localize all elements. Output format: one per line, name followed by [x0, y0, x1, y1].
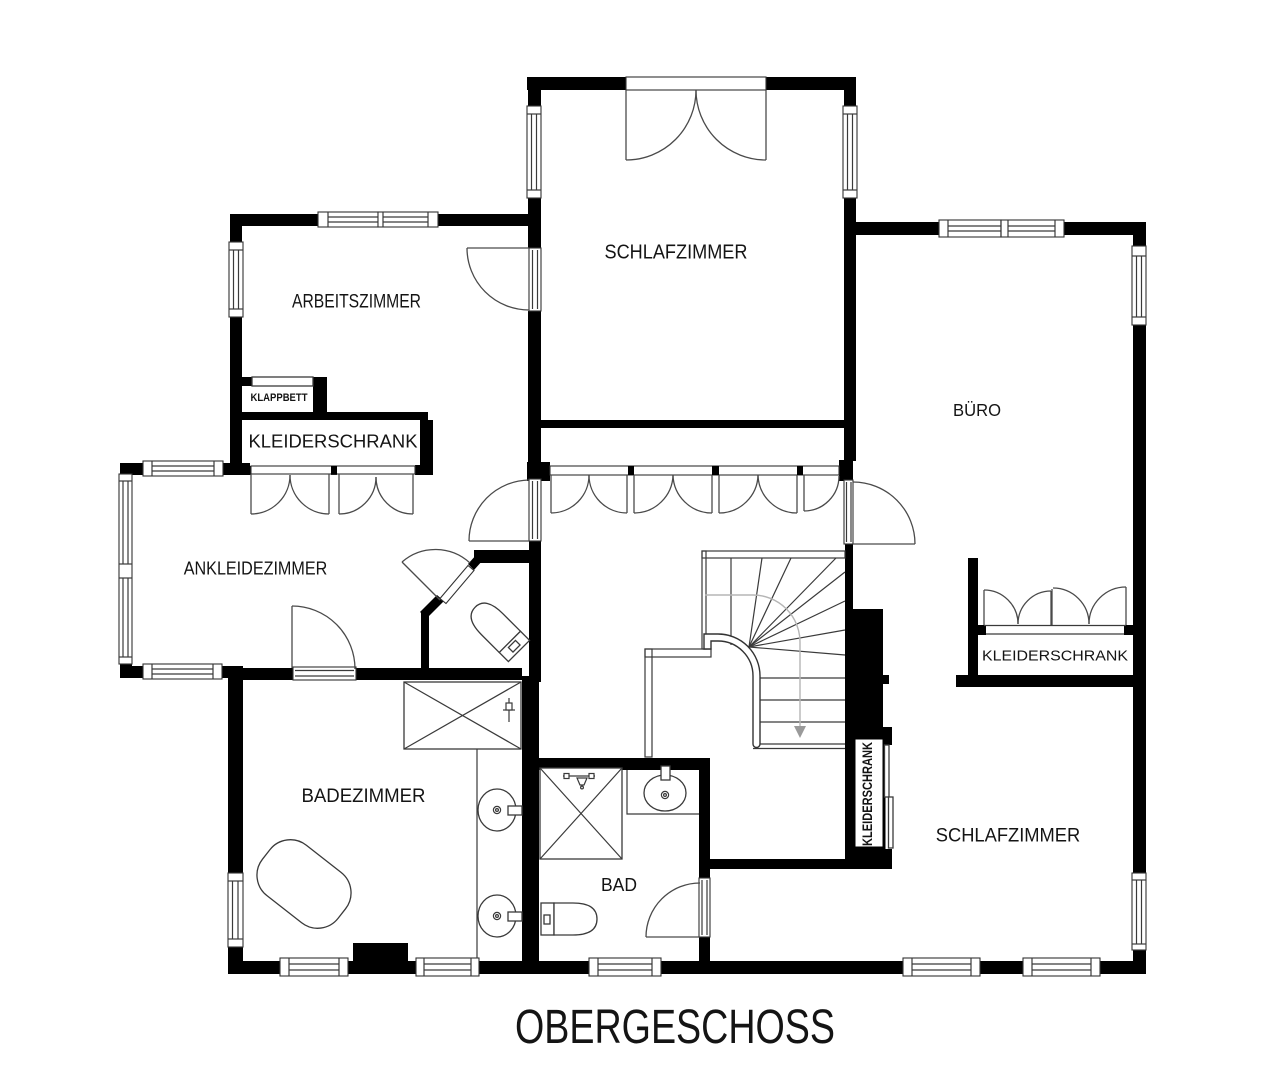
svg-text:BADEZIMMER: BADEZIMMER [302, 786, 426, 807]
svg-text:OBERGESCHOSS: OBERGESCHOSS [515, 1001, 835, 1054]
svg-text:ARBEITSZIMMER: ARBEITSZIMMER [292, 292, 421, 313]
svg-text:KLEIDERSCHRANK: KLEIDERSCHRANK [249, 431, 419, 452]
svg-text:KLEIDERSCHRANK: KLEIDERSCHRANK [982, 648, 1128, 665]
svg-text:KLAPPBETT: KLAPPBETT [251, 392, 308, 404]
svg-text:SCHLAFZIMMER: SCHLAFZIMMER [936, 825, 1081, 847]
svg-text:ANKLEIDEZIMMER: ANKLEIDEZIMMER [184, 558, 328, 579]
svg-text:BÜRO: BÜRO [953, 400, 1001, 420]
svg-text:BAD: BAD [601, 875, 637, 896]
svg-text:SCHLAFZIMMER: SCHLAFZIMMER [605, 242, 748, 264]
svg-text:KLEIDERSCHRANK: KLEIDERSCHRANK [859, 742, 875, 846]
